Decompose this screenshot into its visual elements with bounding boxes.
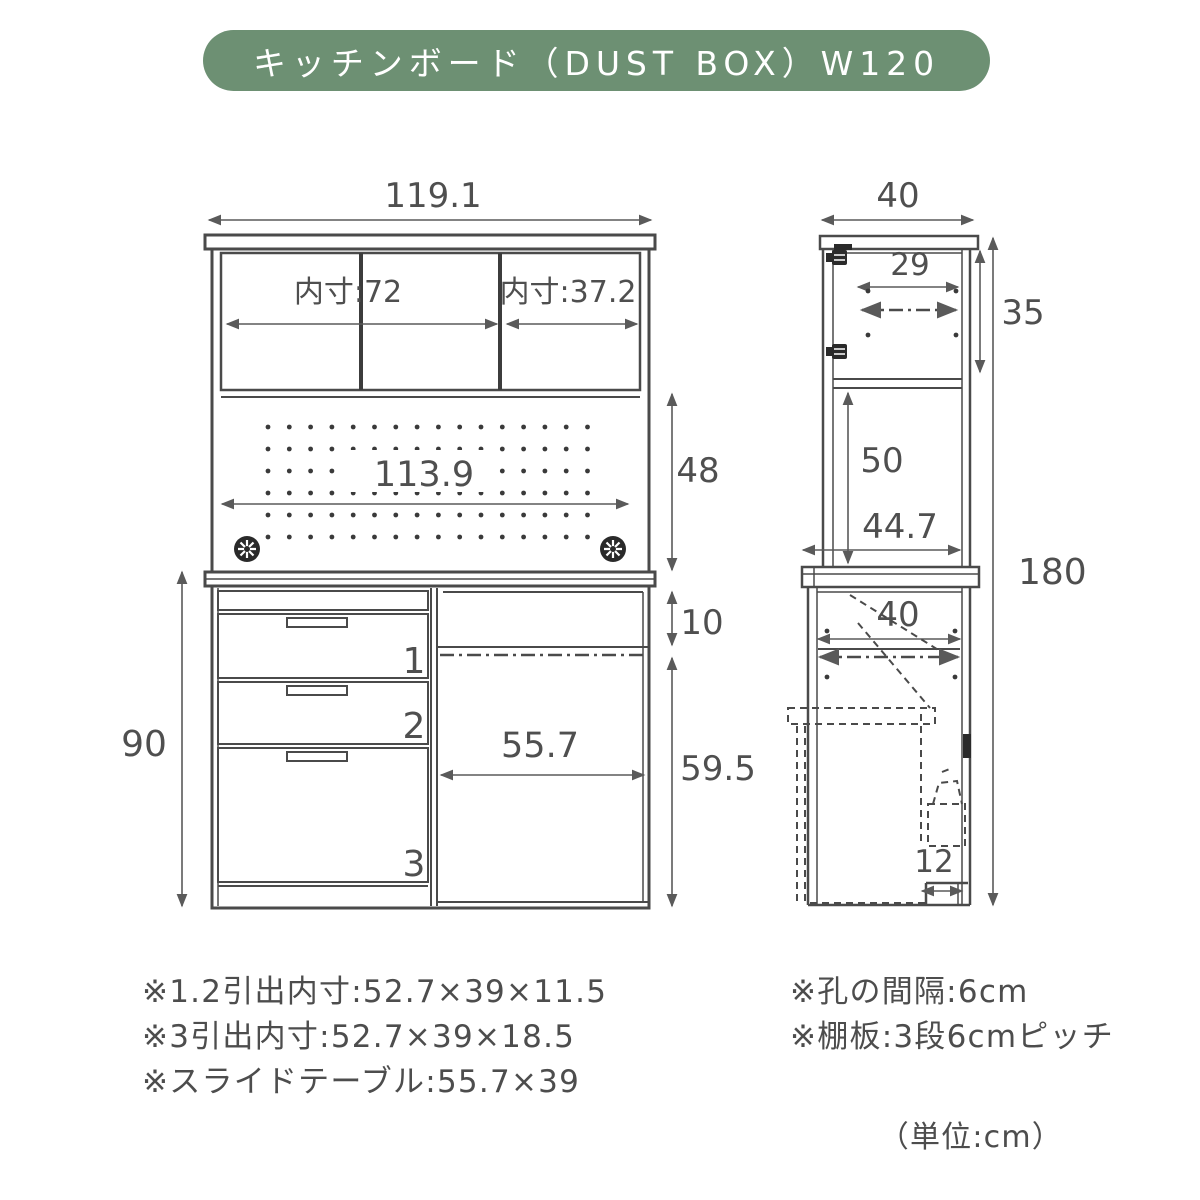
dim-front-board-width: 113.9: [374, 455, 474, 495]
note-drawer12: ※1.2引出内寸:52.7×39×11.5: [142, 970, 607, 1015]
front-view-drawing: 119.1 内寸:72 内寸:37.2 113.9: [121, 176, 756, 908]
note-drawer3: ※3引出内寸:52.7×39×18.5: [142, 1015, 607, 1060]
outlet-icon: [234, 536, 260, 562]
hinge-icon: [834, 244, 852, 250]
dim-side-upper-inner-height: 35: [1001, 293, 1044, 333]
dim-front-lower-height: 90: [121, 724, 167, 765]
drawer-2: [218, 682, 428, 744]
dim-side-counter-depth: 44.7: [862, 507, 938, 547]
dim-front-lower-right-height: 59.5: [680, 749, 756, 789]
dim-front-inner-right: 内寸:37.2: [500, 275, 637, 310]
dim-front-slide-width: 55.7: [501, 726, 579, 766]
dim-front-counter-gap: 10: [680, 603, 723, 643]
drawer-3-label: 3: [403, 844, 426, 885]
unit-note: （単位:cm）: [853, 1112, 1063, 1156]
notes-right: ※孔の間隔:6cm ※棚板:3段6cmピッチ: [790, 970, 1114, 1060]
note-hole-pitch: ※孔の間隔:6cm: [790, 970, 1114, 1015]
drawer-1: [218, 614, 428, 678]
hinge-icon: [826, 344, 847, 359]
dim-side-depth: 40: [876, 176, 919, 216]
drawer-1-label: 1: [403, 641, 426, 682]
dim-front-open-height: 48: [676, 451, 719, 491]
dim-side-base-depth: 12: [914, 844, 953, 880]
note-shelf: ※棚板:3段6cmピッチ: [790, 1015, 1114, 1060]
side-view-drawing: 40 29 35: [788, 176, 1087, 905]
hinge-icon: [826, 250, 847, 265]
outlet-icon: [600, 536, 626, 562]
drawer-2-label: 2: [403, 706, 426, 747]
notes-left: ※1.2引出内寸:52.7×39×11.5 ※3引出内寸:52.7×39×18.…: [142, 970, 607, 1105]
dim-front-total-width: 119.1: [384, 176, 481, 216]
upper-doors: [221, 253, 640, 390]
dim-side-open-height: 50: [860, 441, 903, 481]
note-slide-table: ※スライドテーブル:55.7×39: [142, 1060, 607, 1105]
drawer-3: [218, 748, 428, 882]
dim-front-inner-left: 内寸:72: [294, 275, 402, 310]
dim-side-total-height: 180: [1018, 552, 1087, 593]
dim-side-upper-inner-width: 29: [890, 247, 929, 283]
